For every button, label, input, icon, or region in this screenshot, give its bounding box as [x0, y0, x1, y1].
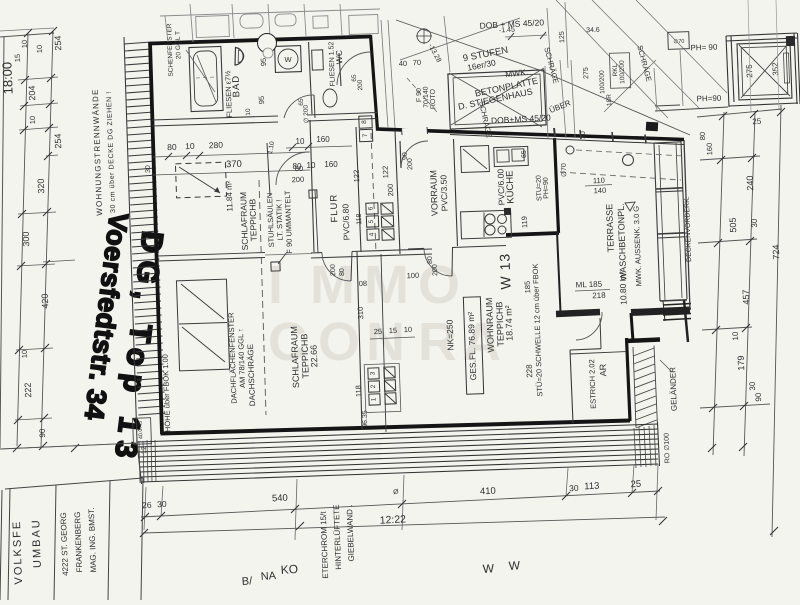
svg-text:70: 70 — [413, 58, 422, 67]
svg-text:O: O — [418, 255, 460, 315]
svg-text:275: 275 — [583, 67, 590, 79]
svg-text:1: 1 — [370, 397, 377, 401]
svg-text:80: 80 — [698, 132, 707, 141]
svg-text:18R: 18R — [606, 94, 613, 106]
svg-text:PH=90: PH=90 — [696, 94, 722, 104]
svg-text:320: 320 — [36, 178, 47, 193]
svg-text:254: 254 — [53, 35, 64, 50]
svg-text:10: 10 — [185, 141, 195, 151]
svg-text:15: 15 — [13, 54, 22, 63]
svg-text:10: 10 — [20, 350, 29, 359]
svg-text:10: 10 — [731, 331, 740, 341]
svg-text:10: 10 — [28, 116, 37, 125]
svg-text:30: 30 — [569, 483, 579, 493]
svg-text:218: 218 — [592, 291, 606, 300]
svg-text:118: 118 — [354, 385, 363, 397]
svg-text:160: 160 — [705, 143, 714, 156]
svg-text:200: 200 — [357, 79, 364, 90]
svg-text:65: 65 — [521, 150, 528, 158]
svg-text:228: 228 — [525, 364, 534, 378]
svg-text:420: 420 — [40, 293, 51, 308]
svg-text:370: 370 — [226, 159, 242, 171]
svg-text:724: 724 — [771, 244, 782, 259]
svg-text:VOLKSFE: VOLKSFE — [11, 520, 25, 585]
svg-text:12:22: 12:22 — [379, 513, 406, 526]
svg-text:100/200: 100/200 — [619, 60, 627, 84]
svg-text:W: W — [482, 561, 495, 576]
svg-text:W 13: W 13 — [496, 253, 513, 290]
svg-text:80: 80 — [339, 268, 346, 276]
svg-text:30: 30 — [145, 165, 152, 173]
svg-text:TEPPICHB: TEPPICHB — [247, 198, 258, 241]
svg-text:505: 505 — [728, 217, 739, 232]
svg-text:FLIESEN ε7½: FLIESEN ε7½ — [223, 70, 234, 118]
svg-text:18:00: 18:00 — [0, 62, 16, 95]
svg-text:ML 185: ML 185 — [576, 280, 603, 290]
svg-text:10: 10 — [296, 137, 305, 146]
svg-text:PH= 90: PH= 90 — [690, 43, 718, 53]
svg-text:4: 4 — [368, 232, 375, 236]
svg-text:26: 26 — [142, 500, 152, 510]
svg-text:204: 204 — [27, 85, 38, 100]
svg-text:Ø: Ø — [393, 489, 399, 496]
svg-text:200: 200 — [292, 175, 305, 184]
svg-text:113: 113 — [584, 481, 600, 493]
svg-text:10: 10 — [20, 40, 29, 49]
svg-text:65: 65 — [298, 98, 305, 106]
svg-text:NK=250: NK=250 — [444, 319, 455, 351]
svg-text:200: 200 — [386, 184, 395, 197]
svg-text:119: 119 — [520, 216, 529, 228]
svg-text:FLUR: FLUR — [329, 193, 341, 222]
svg-text:25: 25 — [374, 327, 383, 336]
svg-text:UMBAU: UMBAU — [30, 518, 44, 568]
svg-text:100: 100 — [407, 271, 420, 280]
svg-text:NA: NA — [260, 570, 277, 583]
svg-text:M: M — [364, 255, 409, 315]
svg-text:3: 3 — [369, 371, 376, 375]
svg-text:25: 25 — [752, 117, 762, 127]
svg-text:11.84 m²: 11.84 m² — [224, 180, 234, 212]
svg-text:179: 179 — [736, 355, 747, 370]
svg-text:∅70: ∅70 — [561, 163, 568, 177]
svg-text:10: 10 — [245, 108, 252, 116]
svg-text:125: 125 — [559, 31, 566, 43]
svg-text:95: 95 — [257, 96, 266, 105]
svg-text:2: 2 — [370, 384, 377, 388]
svg-text:160: 160 — [324, 160, 338, 169]
svg-text:7: 7 — [362, 133, 369, 137]
svg-text:PVC/3.50: PVC/3.50 — [438, 174, 449, 211]
svg-text:18.74 m²: 18.74 m² — [503, 305, 514, 341]
svg-text:95: 95 — [259, 58, 268, 67]
svg-text:-1.45: -1.45 — [499, 27, 515, 35]
svg-text:40: 40 — [399, 59, 408, 68]
svg-text:185: 185 — [523, 281, 532, 294]
svg-text:22.66: 22.66 — [309, 345, 320, 368]
svg-text:GELÄNDER: GELÄNDER — [668, 367, 679, 412]
svg-text:30: 30 — [580, 131, 587, 139]
svg-text:15: 15 — [389, 326, 398, 335]
svg-text:80: 80 — [427, 256, 434, 264]
svg-text:222: 222 — [23, 382, 34, 397]
svg-text:25: 25 — [630, 479, 641, 491]
svg-text:80: 80 — [295, 164, 304, 173]
svg-text:118: 118 — [356, 213, 363, 225]
svg-text:ROTO: ROTO — [430, 88, 438, 109]
svg-text:122: 122 — [352, 170, 361, 183]
svg-text:∅70: ∅70 — [673, 38, 684, 45]
svg-text:M: M — [310, 255, 355, 315]
svg-text:100/200: 100/200 — [599, 70, 607, 94]
svg-text:ESTRICH 2.02: ESTRICH 2.02 — [587, 359, 598, 409]
svg-text:254: 254 — [53, 133, 64, 148]
svg-text:457: 457 — [741, 289, 752, 304]
svg-text:122: 122 — [381, 166, 390, 179]
svg-text:TERRASSE: TERRASSE — [604, 204, 616, 253]
svg-text:W: W — [284, 55, 292, 64]
svg-text:PVC/6.80: PVC/6.80 — [340, 203, 351, 240]
svg-text:I: I — [268, 255, 283, 315]
svg-text:8: 8 — [361, 120, 368, 124]
svg-text:310: 310 — [356, 307, 365, 320]
svg-text:200: 200 — [330, 264, 337, 276]
svg-text:410: 410 — [480, 486, 496, 498]
svg-text:PVC/6.00: PVC/6.00 — [495, 168, 506, 205]
svg-text:34.6: 34.6 — [586, 27, 600, 34]
svg-text:352: 352 — [771, 62, 780, 76]
svg-text:300: 300 — [21, 231, 32, 246]
svg-text:10.80 m²: 10.80 m² — [617, 271, 628, 305]
svg-text:5: 5 — [368, 219, 375, 223]
svg-text:90: 90 — [38, 428, 47, 438]
svg-text:10: 10 — [404, 325, 413, 334]
svg-text:200: 200 — [407, 158, 414, 170]
svg-text:W: W — [508, 558, 521, 573]
svg-text:08: 08 — [359, 279, 368, 288]
svg-text:200: 200 — [432, 264, 439, 276]
svg-text:PH=90: PH=90 — [543, 177, 551, 199]
svg-text:30: 30 — [157, 499, 167, 509]
svg-text:110: 110 — [593, 176, 605, 185]
svg-text:AR: AR — [598, 363, 608, 376]
svg-text:10: 10 — [35, 45, 44, 54]
svg-text:6: 6 — [367, 206, 374, 210]
svg-text:B/: B/ — [241, 575, 253, 588]
svg-text:240: 240 — [745, 175, 756, 190]
svg-text:20 GGL T: 20 GGL T — [175, 31, 183, 59]
svg-text:10: 10 — [307, 161, 316, 170]
svg-text:90: 90 — [754, 392, 763, 402]
svg-text:140: 140 — [594, 186, 607, 195]
svg-text:40.0.45: 40.0.45 — [138, 421, 145, 440]
svg-text:80: 80 — [167, 142, 177, 152]
svg-text:280: 280 — [209, 140, 224, 150]
svg-text:RO ∅100: RO ∅100 — [663, 433, 671, 464]
svg-text:∅ 200: ∅ 200 — [303, 104, 311, 123]
svg-text:STU=20: STU=20 — [536, 175, 544, 201]
svg-text:30: 30 — [750, 218, 759, 228]
svg-text:KO: KO — [280, 562, 298, 577]
svg-text:540: 540 — [272, 493, 288, 505]
svg-text:160: 160 — [316, 135, 330, 144]
svg-text:O: O — [318, 312, 360, 372]
svg-text:30: 30 — [748, 381, 757, 391]
